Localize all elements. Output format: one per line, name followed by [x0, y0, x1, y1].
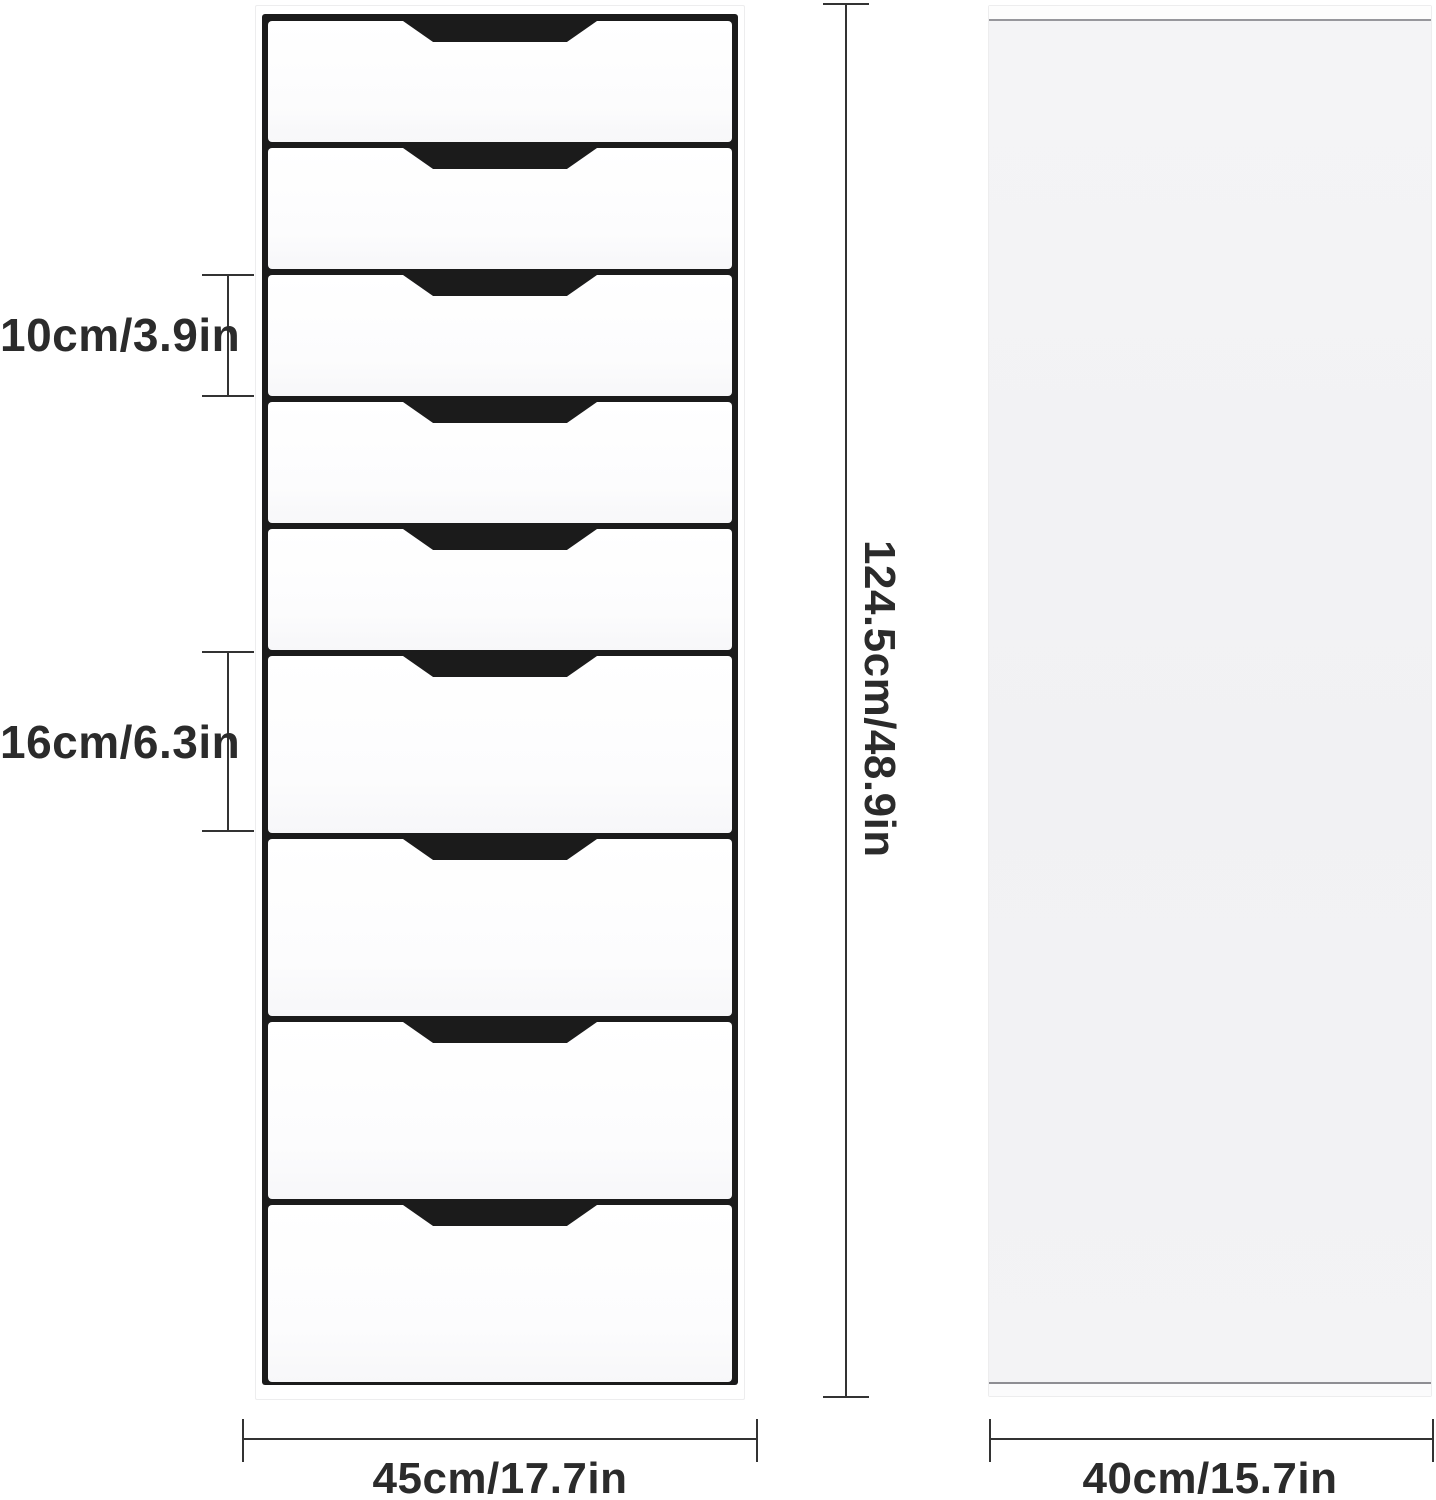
drawer-handle-cutout: [403, 656, 597, 677]
side-bottom-edge: [989, 1384, 1431, 1396]
drawer-handle-cutout: [403, 148, 597, 169]
small-drawer-dimension-label: 10cm/3.9in: [0, 312, 212, 358]
drawer-handle-cutout: [403, 1205, 597, 1226]
side-view-panel: [988, 5, 1432, 1397]
drawer-large: [268, 656, 732, 833]
width-dimension-line: [242, 1438, 758, 1440]
small-drawer-dimension-tick-bottom: [202, 395, 254, 397]
total-height-dimension-label: 124.5cm/48.9in: [854, 0, 904, 1398]
drawer-handle-cutout: [403, 1022, 597, 1043]
large-drawer-dimension-tick-top: [202, 651, 254, 653]
cabinet-interior: [262, 14, 738, 1385]
drawer-handle-cutout: [403, 402, 597, 423]
drawer-handle-cutout: [403, 839, 597, 860]
side-top-edge: [989, 6, 1431, 19]
drawer-large: [268, 839, 732, 1016]
drawer-large: [268, 1205, 732, 1382]
large-drawer-dimension-tick-bottom: [202, 830, 254, 832]
drawer-small: [268, 529, 732, 650]
drawer-small: [268, 402, 732, 523]
depth-dimension-label: 40cm/15.7in: [988, 1456, 1432, 1500]
drawer-handle-cutout: [403, 275, 597, 296]
drawer-small: [268, 148, 732, 269]
depth-dimension-line: [989, 1438, 1434, 1440]
drawer-handle-cutout: [403, 21, 597, 42]
total-height-dimension-line: [845, 3, 847, 1398]
drawer-small: [268, 275, 732, 396]
product-dimension-diagram: 10cm/3.9in 16cm/6.3in 124.5cm/48.9in 45c…: [0, 0, 1436, 1500]
drawer-large: [268, 1022, 732, 1199]
front-view-cabinet: [255, 5, 745, 1400]
large-drawer-dimension-label: 16cm/6.3in: [0, 719, 212, 765]
drawer-handle-cutout: [403, 529, 597, 550]
depth-dimension-tick-right: [1432, 1419, 1434, 1462]
small-drawer-dimension-tick-top: [202, 274, 254, 276]
side-panel-surface: [989, 21, 1431, 1382]
drawer-small: [268, 21, 732, 142]
width-dimension-label: 45cm/17.7in: [242, 1456, 758, 1500]
